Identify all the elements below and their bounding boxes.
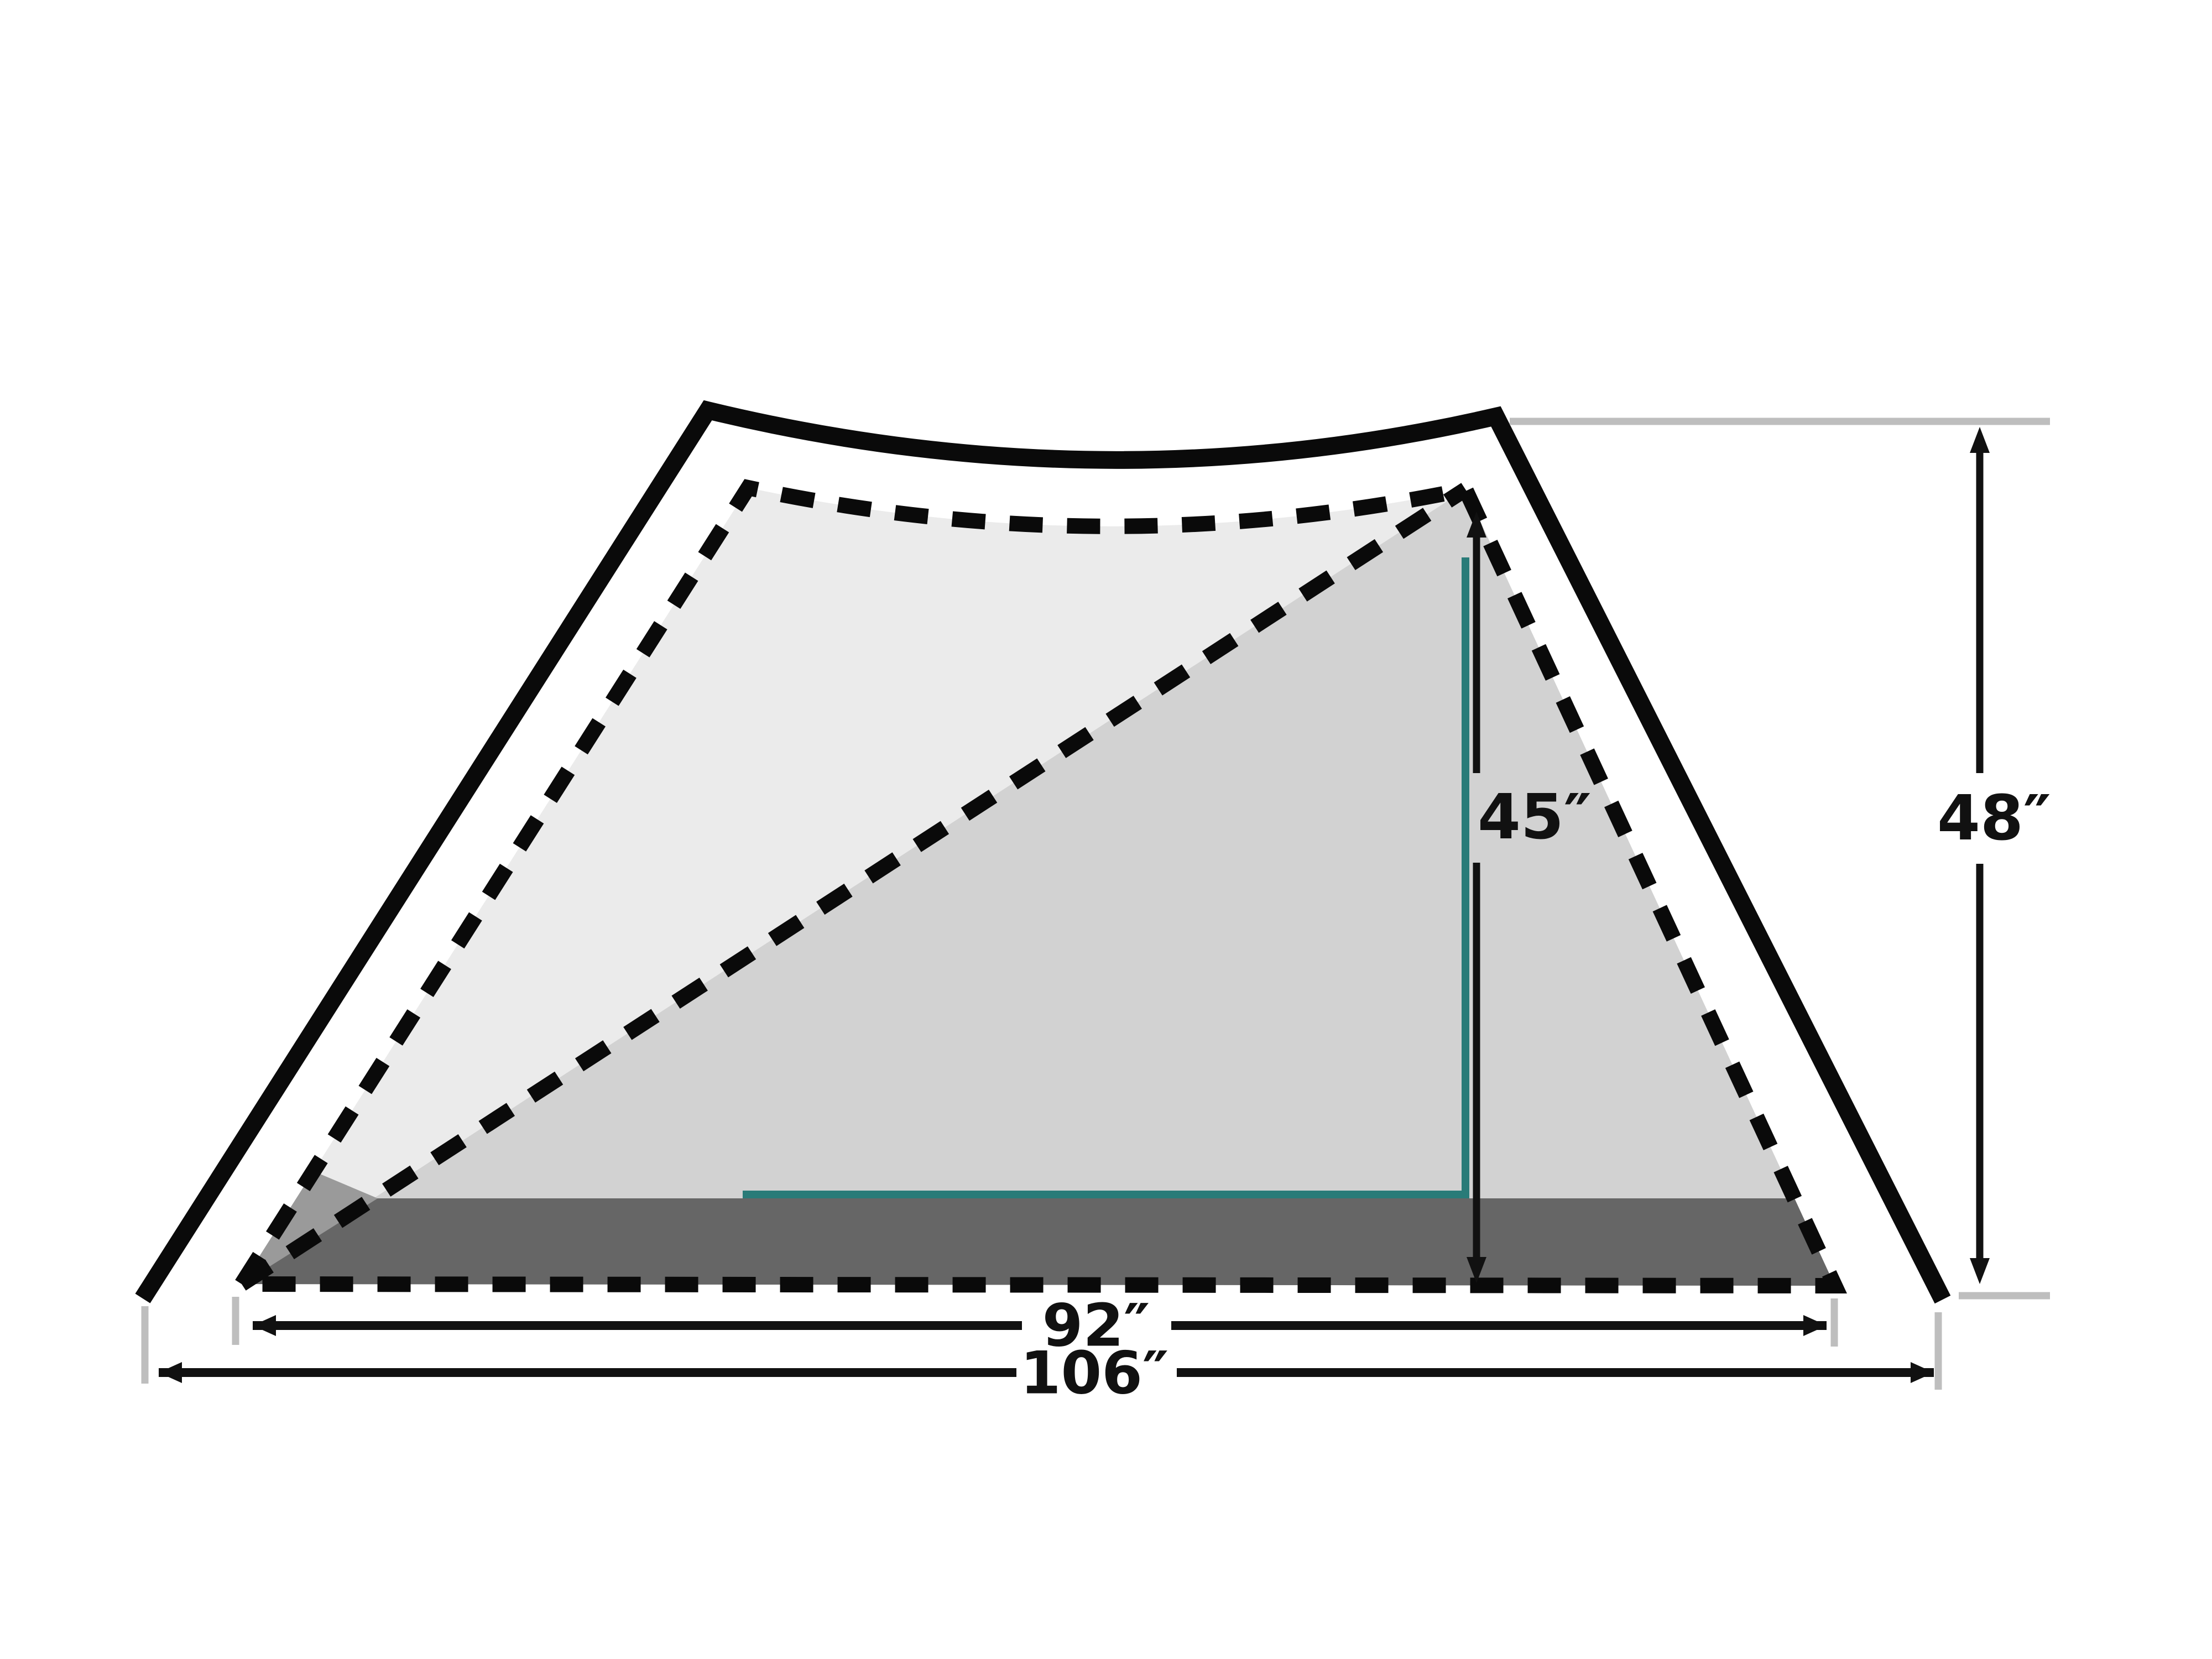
arrowhead-up-icon [1970, 427, 1990, 453]
floor-fill [242, 1198, 1835, 1286]
diagram-canvas: 45″ 48″ 92″ 106″ [0, 0, 2212, 1659]
interior-height-label: 45″ [1478, 781, 1592, 853]
peak-height-label: 48″ [1937, 782, 2051, 854]
arrowhead-right-icon [1803, 1315, 1827, 1336]
arrowhead-down-icon [1970, 1258, 1990, 1284]
tent-dimensions-diagram: 45″ 48″ 92″ 106″ [0, 0, 2212, 1659]
peak-height-dimension: 48″ [1937, 427, 2051, 1284]
arrowhead-left-icon [253, 1315, 276, 1336]
arrowhead-right-icon [1911, 1362, 1934, 1383]
arrowhead-left-icon [159, 1362, 182, 1383]
outer-width-label: 106″ [1020, 1339, 1169, 1407]
outer-width-dimension: 106″ [159, 1339, 1934, 1407]
